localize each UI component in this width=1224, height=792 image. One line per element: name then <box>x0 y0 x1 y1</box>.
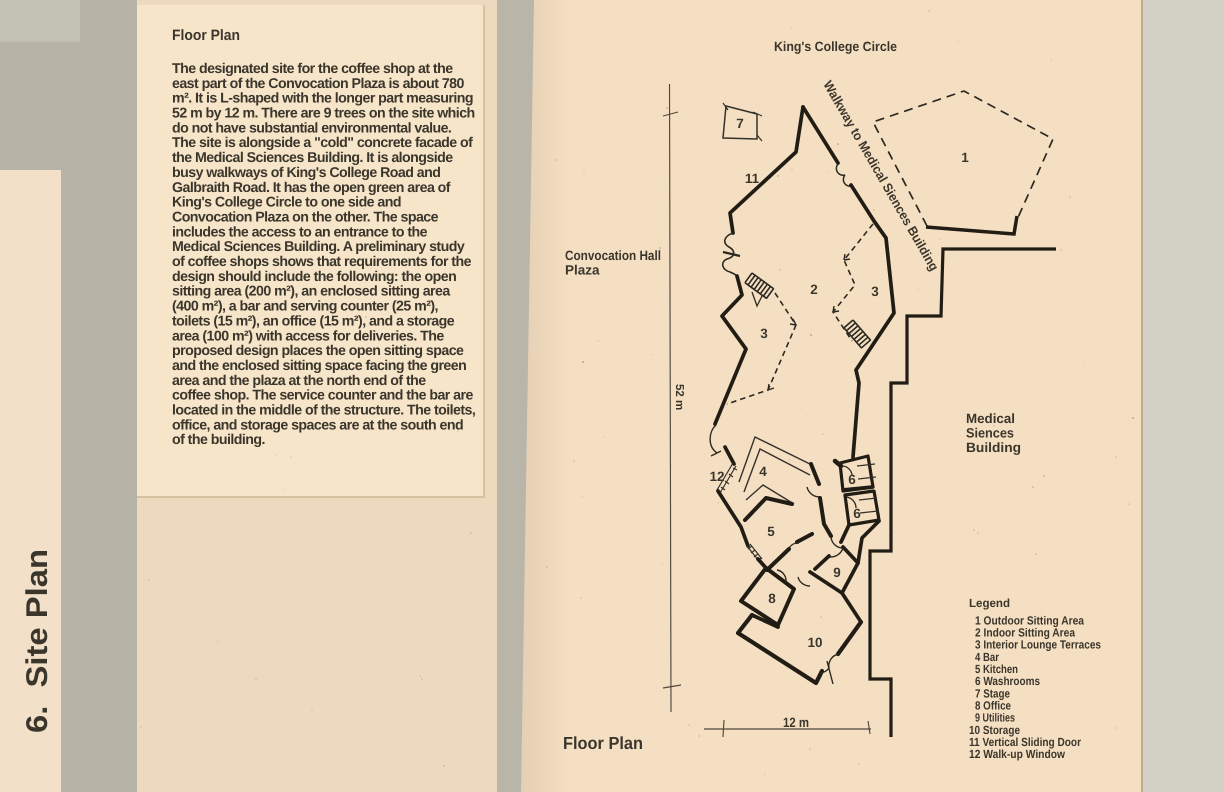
svg-text:6. Site Plan: 6. Site Plan <box>21 549 54 733</box>
svg-text:9: 9 <box>833 565 841 580</box>
svg-text:1: 1 <box>961 150 969 165</box>
svg-text:3: 3 <box>871 284 879 299</box>
svg-text:coffee shop. The service count: coffee shop. The service counter and the… <box>172 388 473 404</box>
svg-text:office, and storage spaces are: office, and storage spaces are at the so… <box>172 417 463 433</box>
svg-text:(400 m²), a bar and serving co: (400 m²), a bar and serving counter (25 … <box>172 299 438 315</box>
svg-text:sitting area (200 m²), an encl: sitting area (200 m²), an enclosed sitti… <box>172 284 450 300</box>
svg-text:Galbraith Road. It has the ope: Galbraith Road. It has the open green ar… <box>172 180 451 196</box>
svg-text:The designated site for the co: The designated site for the coffee shop … <box>172 61 453 77</box>
svg-text:6: 6 <box>853 506 861 521</box>
svg-text:Plaza: Plaza <box>565 262 600 277</box>
svg-text:Siences: Siences <box>966 426 1014 441</box>
svg-text:Legend: Legend <box>969 596 1010 610</box>
svg-text:the Medical Sciences Building.: the Medical Sciences Building. It is alo… <box>172 150 453 166</box>
svg-text:of coffee shops shows that req: of coffee shops shows that requirements … <box>172 254 472 270</box>
svg-text:12: 12 <box>709 469 724 484</box>
svg-text:12 m: 12 m <box>783 715 809 730</box>
svg-text:52 m by 12 m. There are 9 tree: 52 m by 12 m. There are 9 trees on the s… <box>172 106 475 122</box>
svg-text:toilets (15 m²), an office (15: toilets (15 m²), an office (15 m²), and … <box>172 313 455 329</box>
svg-text:busy walkways of King's Colleg: busy walkways of King's College Road and <box>172 165 440 181</box>
svg-text:Medical Sciences Building. A p: Medical Sciences Building. A preliminary… <box>172 239 465 255</box>
svg-text:includes the access to an entr: includes the access to an entrance to th… <box>172 224 428 240</box>
svg-text:area (100 m²) with access for: area (100 m²) with access for deliveries… <box>172 328 444 344</box>
svg-text:Convocation Hall: Convocation Hall <box>565 248 661 263</box>
svg-text:King's College Circle to one s: King's College Circle to one side and <box>172 195 401 211</box>
svg-text:7: 7 <box>736 116 744 131</box>
svg-text:4: 4 <box>759 464 767 479</box>
svg-text:Building: Building <box>966 440 1021 455</box>
svg-text:m². It is L-shaped with the lo: m². It is L-shaped with the longer part … <box>172 91 473 107</box>
svg-text:east part of the Convocation P: east part of the Convocation Plaza is ab… <box>172 76 465 92</box>
svg-text:Convocation Plaza on the other: Convocation Plaza on the other. The spac… <box>172 210 439 226</box>
svg-text:King's College Circle: King's College Circle <box>774 39 897 54</box>
svg-text:Floor Plan: Floor Plan <box>563 733 643 753</box>
svg-text:do not have substantial enviro: do not have substantial environmental va… <box>172 120 451 136</box>
svg-text:8: 8 <box>768 591 776 606</box>
svg-text:area and the plaza at the nort: area and the plaza at the north end of t… <box>172 373 426 389</box>
svg-text:Medical: Medical <box>966 411 1015 426</box>
svg-text:6: 6 <box>848 472 856 487</box>
svg-text:3: 3 <box>760 326 768 341</box>
svg-text:52 m: 52 m <box>673 384 685 410</box>
svg-text:design should include the foll: design should include the following: the… <box>172 269 456 285</box>
svg-text:Floor Plan: Floor Plan <box>172 27 240 44</box>
svg-text:proposed design places the ope: proposed design places the open sitting … <box>172 343 464 359</box>
svg-text:11: 11 <box>745 171 760 186</box>
svg-text:and the enclosed sitting space: and the enclosed sitting space facing th… <box>172 358 466 374</box>
svg-text:10: 10 <box>807 635 822 650</box>
svg-text:located in the middle of the s: located in the middle of the structure. … <box>172 403 475 419</box>
svg-text:of the building.: of the building. <box>172 432 265 448</box>
svg-text:12 Walk-up Window: 12 Walk-up Window <box>969 747 1066 761</box>
svg-text:5: 5 <box>767 524 775 539</box>
svg-text:2: 2 <box>810 282 818 297</box>
svg-text:The site is alongside a "cold": The site is alongside a "cold" concrete … <box>172 135 473 151</box>
